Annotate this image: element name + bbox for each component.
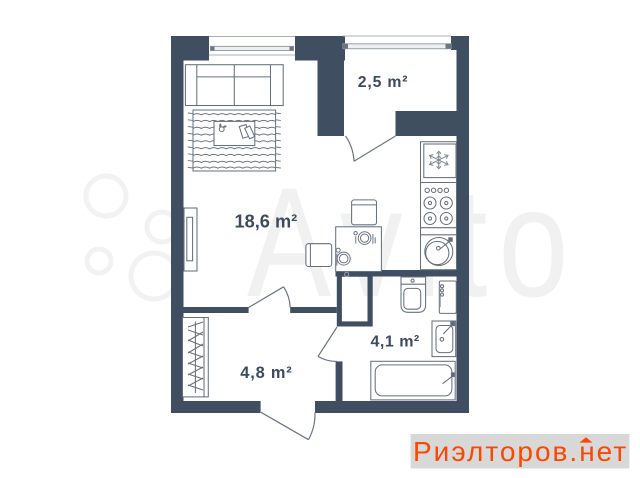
svg-text:18,6 m²: 18,6 m² [235, 211, 298, 231]
svg-text:4,1 m²: 4,1 m² [371, 334, 420, 351]
svg-text:4,8 m²: 4,8 m² [240, 364, 292, 382]
svg-text:Риэлторов.нет: Риэлторов.нет [413, 436, 628, 467]
svg-text:2,5 m²: 2,5 m² [358, 74, 408, 91]
